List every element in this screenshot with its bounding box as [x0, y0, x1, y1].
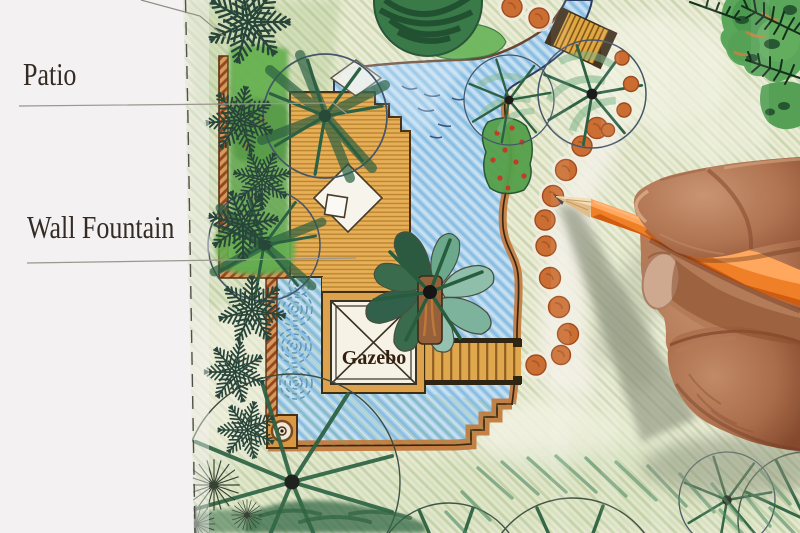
svg-text:Wall Fountain: Wall Fountain [27, 211, 175, 246]
svg-text:Patio: Patio [23, 58, 76, 93]
svg-text:Gazebo: Gazebo [342, 347, 406, 369]
